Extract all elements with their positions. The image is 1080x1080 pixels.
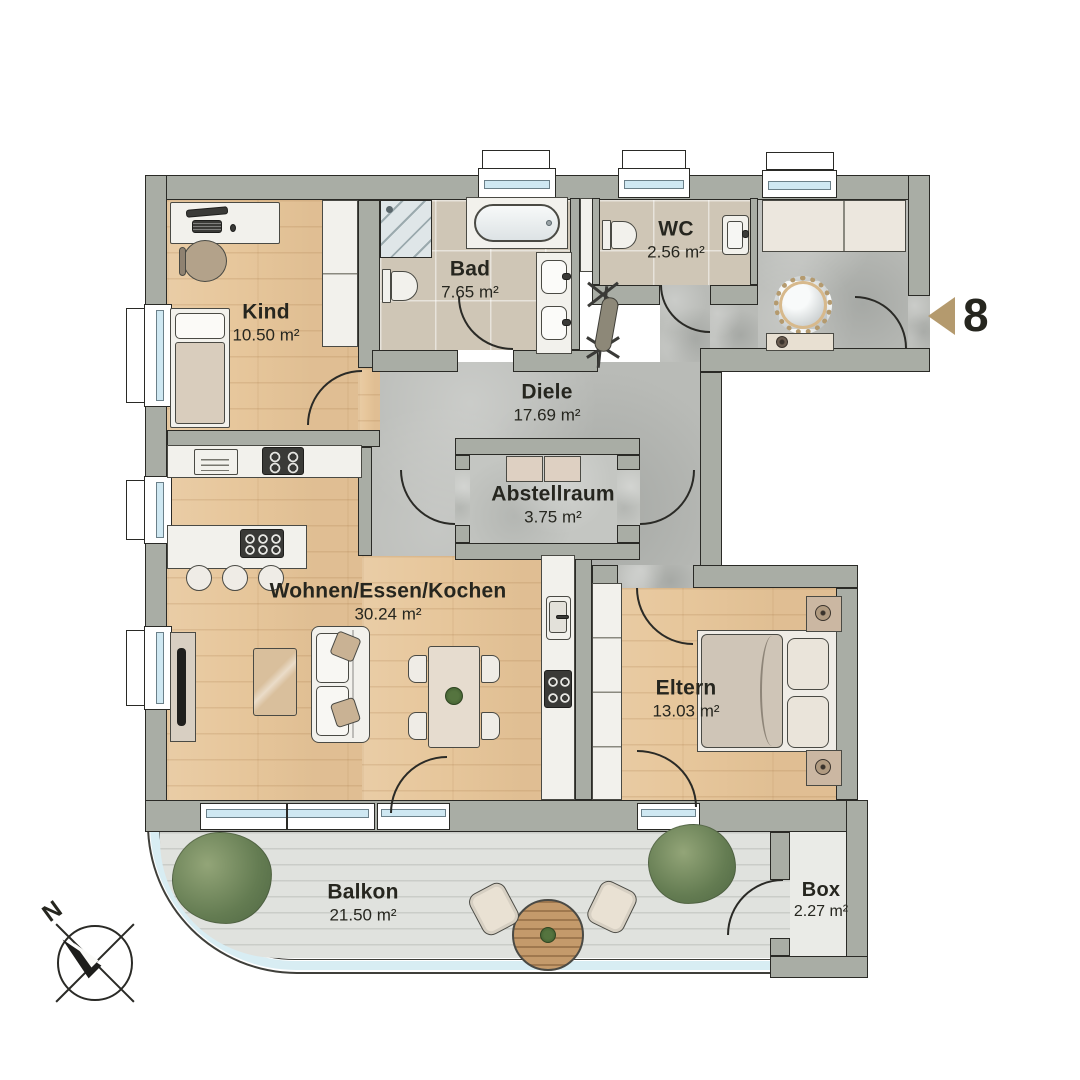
entry-threshold: [908, 295, 930, 348]
kind-bed-pillow: [175, 313, 225, 339]
window-kind-glass: [156, 310, 164, 401]
box-name: Box: [794, 879, 848, 903]
bowl-icon: [776, 336, 788, 348]
wall-eltern-top: [693, 565, 858, 588]
dryer: [544, 456, 581, 482]
bad-name: Bad: [441, 258, 499, 283]
window-bad-glass: [484, 180, 550, 189]
dining-chair-1: [408, 655, 427, 683]
eltern-label: Eltern 13.03 m²: [652, 677, 719, 722]
compass-north-label: N: [37, 896, 67, 929]
kind-label: Kind 10.50 m²: [232, 301, 299, 346]
kind-bed-duvet: [175, 342, 225, 424]
hall-closet: [762, 200, 906, 252]
window-kitchen-glass: [156, 482, 164, 538]
eltern-name: Eltern: [652, 677, 719, 702]
abstellraum-label: Abstellraum 3.75 m²: [491, 483, 615, 528]
window-balkon-mullion: [286, 804, 288, 829]
wall-wc-left: [592, 198, 600, 285]
wall-abstell-right-b: [617, 525, 640, 543]
window-kitchen-outer: [126, 480, 146, 540]
window-wc-outer: [622, 150, 686, 170]
bad-label: Bad 7.65 m²: [441, 258, 499, 303]
keyboard-icon: [192, 220, 222, 233]
diele-label: Diele 17.69 m²: [513, 381, 580, 426]
wc-toilet-tank: [602, 220, 611, 250]
bar-stool-1: [186, 565, 212, 591]
cooktop: [262, 447, 304, 475]
entrance-arrow-icon: [928, 297, 955, 335]
shower-head-icon: [386, 206, 393, 213]
eltern-door-threshold: [618, 565, 693, 588]
eltern-wardrobe: [592, 583, 622, 800]
wc-faucet: [742, 230, 749, 238]
diele-area: 17.69 m²: [513, 405, 580, 425]
kind-wardrobe: [322, 200, 358, 347]
wall-box-left-b: [770, 938, 790, 956]
wall-wohnen-eltern-divider: [575, 556, 592, 800]
kind-desk-chair: [183, 240, 227, 282]
diele-name: Diele: [513, 381, 580, 406]
oven: [194, 449, 238, 475]
bad-faucet-1: [562, 273, 571, 280]
mirror-icon: [774, 276, 832, 334]
hall-closet-divider: [843, 201, 845, 251]
wall-box-left-a: [770, 832, 790, 880]
eltern-pillow-1: [787, 638, 829, 690]
cooktop-2: [544, 670, 572, 708]
wall-abstell-top: [455, 438, 640, 455]
window-wohnen-outer: [126, 630, 146, 706]
coffee-table: [253, 648, 297, 716]
kind-chair-back: [179, 247, 186, 276]
balkon-name: Balkon: [327, 881, 398, 906]
wc-area: 2.56 m²: [647, 242, 705, 262]
bathtub-drain-icon: [546, 220, 552, 226]
bad-area: 7.65 m²: [441, 282, 499, 302]
dining-chair-3: [481, 655, 500, 683]
abstell-right-door-gap: [617, 470, 640, 525]
wall-kind-right: [358, 200, 380, 368]
eltern-area: 13.03 m²: [652, 701, 719, 721]
wc-name: WC: [647, 218, 705, 243]
wall-hall-bottom: [700, 348, 930, 372]
window-wc-glass: [624, 180, 684, 189]
kitchen-faucet: [556, 615, 569, 619]
dining-chair-4: [481, 712, 500, 740]
eltern-duvet-fold: [760, 636, 784, 746]
balkon-table-plant-icon: [540, 927, 556, 943]
door-balkon-eltern-glass: [641, 809, 696, 817]
wall-abstell-left-b: [455, 525, 470, 543]
abstell-left-door-gap: [455, 470, 470, 525]
wall-abstell-left-a: [455, 455, 470, 470]
wall-box-bottom: [770, 956, 868, 978]
window-hall-glass: [768, 181, 831, 190]
island-grate: [240, 529, 284, 558]
box-area: 2.27 m²: [794, 902, 848, 921]
unit-number: 8: [963, 288, 989, 342]
window-hall-outer: [766, 152, 834, 170]
balkon-plant-2: [648, 824, 736, 904]
box-label: Box 2.27 m²: [794, 879, 848, 921]
balkon-plant-1: [172, 832, 272, 924]
bad-faucet-2: [562, 319, 571, 326]
wall-right-upper: [908, 175, 930, 296]
dining-chair-2: [408, 712, 427, 740]
mouse-icon: [230, 224, 236, 232]
wall-wc-bottom-right: [710, 285, 758, 305]
wall-abstell-right-a: [617, 455, 640, 470]
eltern-pillow-2: [787, 696, 829, 748]
kitchen-island: [167, 525, 307, 569]
bad-toilet-tank: [382, 269, 391, 303]
window-kind-outer: [126, 308, 146, 403]
abstellraum-area: 3.75 m²: [491, 507, 615, 527]
balkon-label: Balkon 21.50 m²: [327, 881, 398, 926]
wall-wc-hall-divider: [750, 198, 758, 285]
lamp-icon-1: [815, 605, 831, 621]
wall-corridor-right: [700, 372, 722, 570]
window-bad-outer: [482, 150, 550, 170]
wohnen-name: Wohnen/Essen/Kochen: [270, 580, 507, 605]
wc-label: WC 2.56 m²: [647, 218, 705, 263]
table-plant-icon: [445, 687, 463, 705]
wohnen-label: Wohnen/Essen/Kochen 30.24 m²: [270, 580, 507, 625]
window-wohnen-glass: [156, 632, 164, 704]
floor-plan-canvas: Kind 10.50 m² Bad 7.65 m² WC 2.56 m² Die…: [0, 0, 1080, 1080]
kind-area: 10.50 m²: [232, 325, 299, 345]
abstellraum-name: Abstellraum: [491, 483, 615, 508]
wall-box-right: [846, 800, 868, 978]
washer: [506, 456, 543, 482]
wohnen-area: 30.24 m²: [270, 604, 507, 624]
lamp-icon-2: [815, 759, 831, 775]
bar-stool-2: [222, 565, 248, 591]
kind-name: Kind: [232, 301, 299, 326]
wall-bad-bottom-left: [372, 350, 458, 372]
wc-sink-basin: [727, 221, 743, 249]
balkon-area: 21.50 m²: [327, 905, 398, 925]
tv-icon: [177, 648, 186, 726]
